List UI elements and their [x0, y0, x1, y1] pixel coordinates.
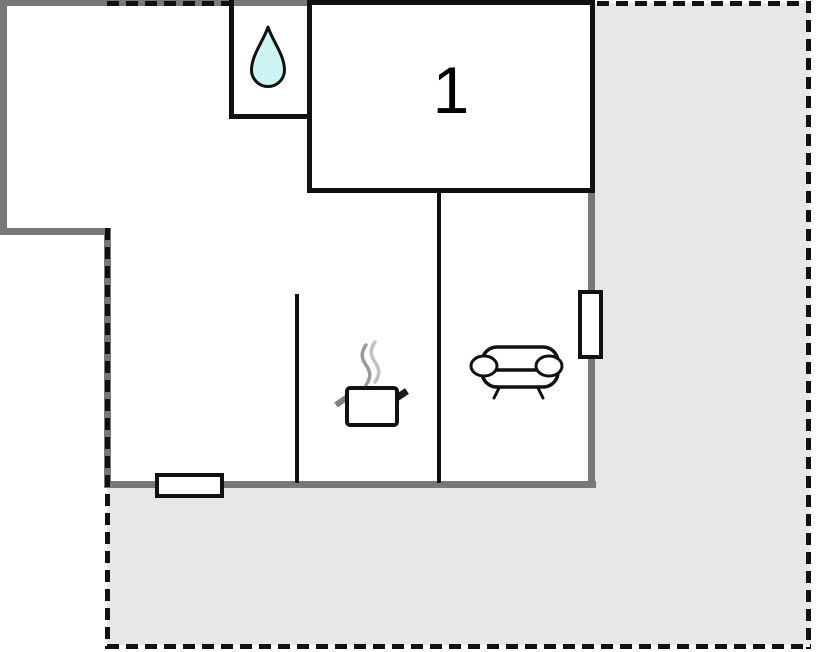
floor-plan: 1 [0, 0, 816, 652]
water-drop-icon [248, 24, 288, 90]
room-1: 1 [307, 0, 595, 193]
bathroom-wall-bottom [229, 114, 310, 119]
sofa-icon [466, 340, 570, 402]
terrace-dash-left [105, 228, 110, 649]
bathroom-wall-left [229, 0, 234, 119]
terrace-area-bottom [107, 488, 595, 645]
terrace-dash-bottom [107, 644, 811, 649]
room-1-label: 1 [433, 57, 470, 123]
window-bottom-wall [155, 473, 224, 498]
cooking-pot-icon [333, 340, 411, 432]
partition-wall-hall-kitchen [295, 294, 299, 483]
terrace-dash-right [806, 1, 811, 649]
partition-wall-kitchen-living [437, 190, 441, 483]
terrace-area-right [595, 3, 810, 645]
wall-step-horizontal [0, 228, 111, 235]
terrace-dash-top-left [107, 1, 232, 6]
terrace-dash-top-right [597, 1, 810, 6]
window-right-wall [578, 290, 603, 359]
wall-left [0, 0, 7, 235]
